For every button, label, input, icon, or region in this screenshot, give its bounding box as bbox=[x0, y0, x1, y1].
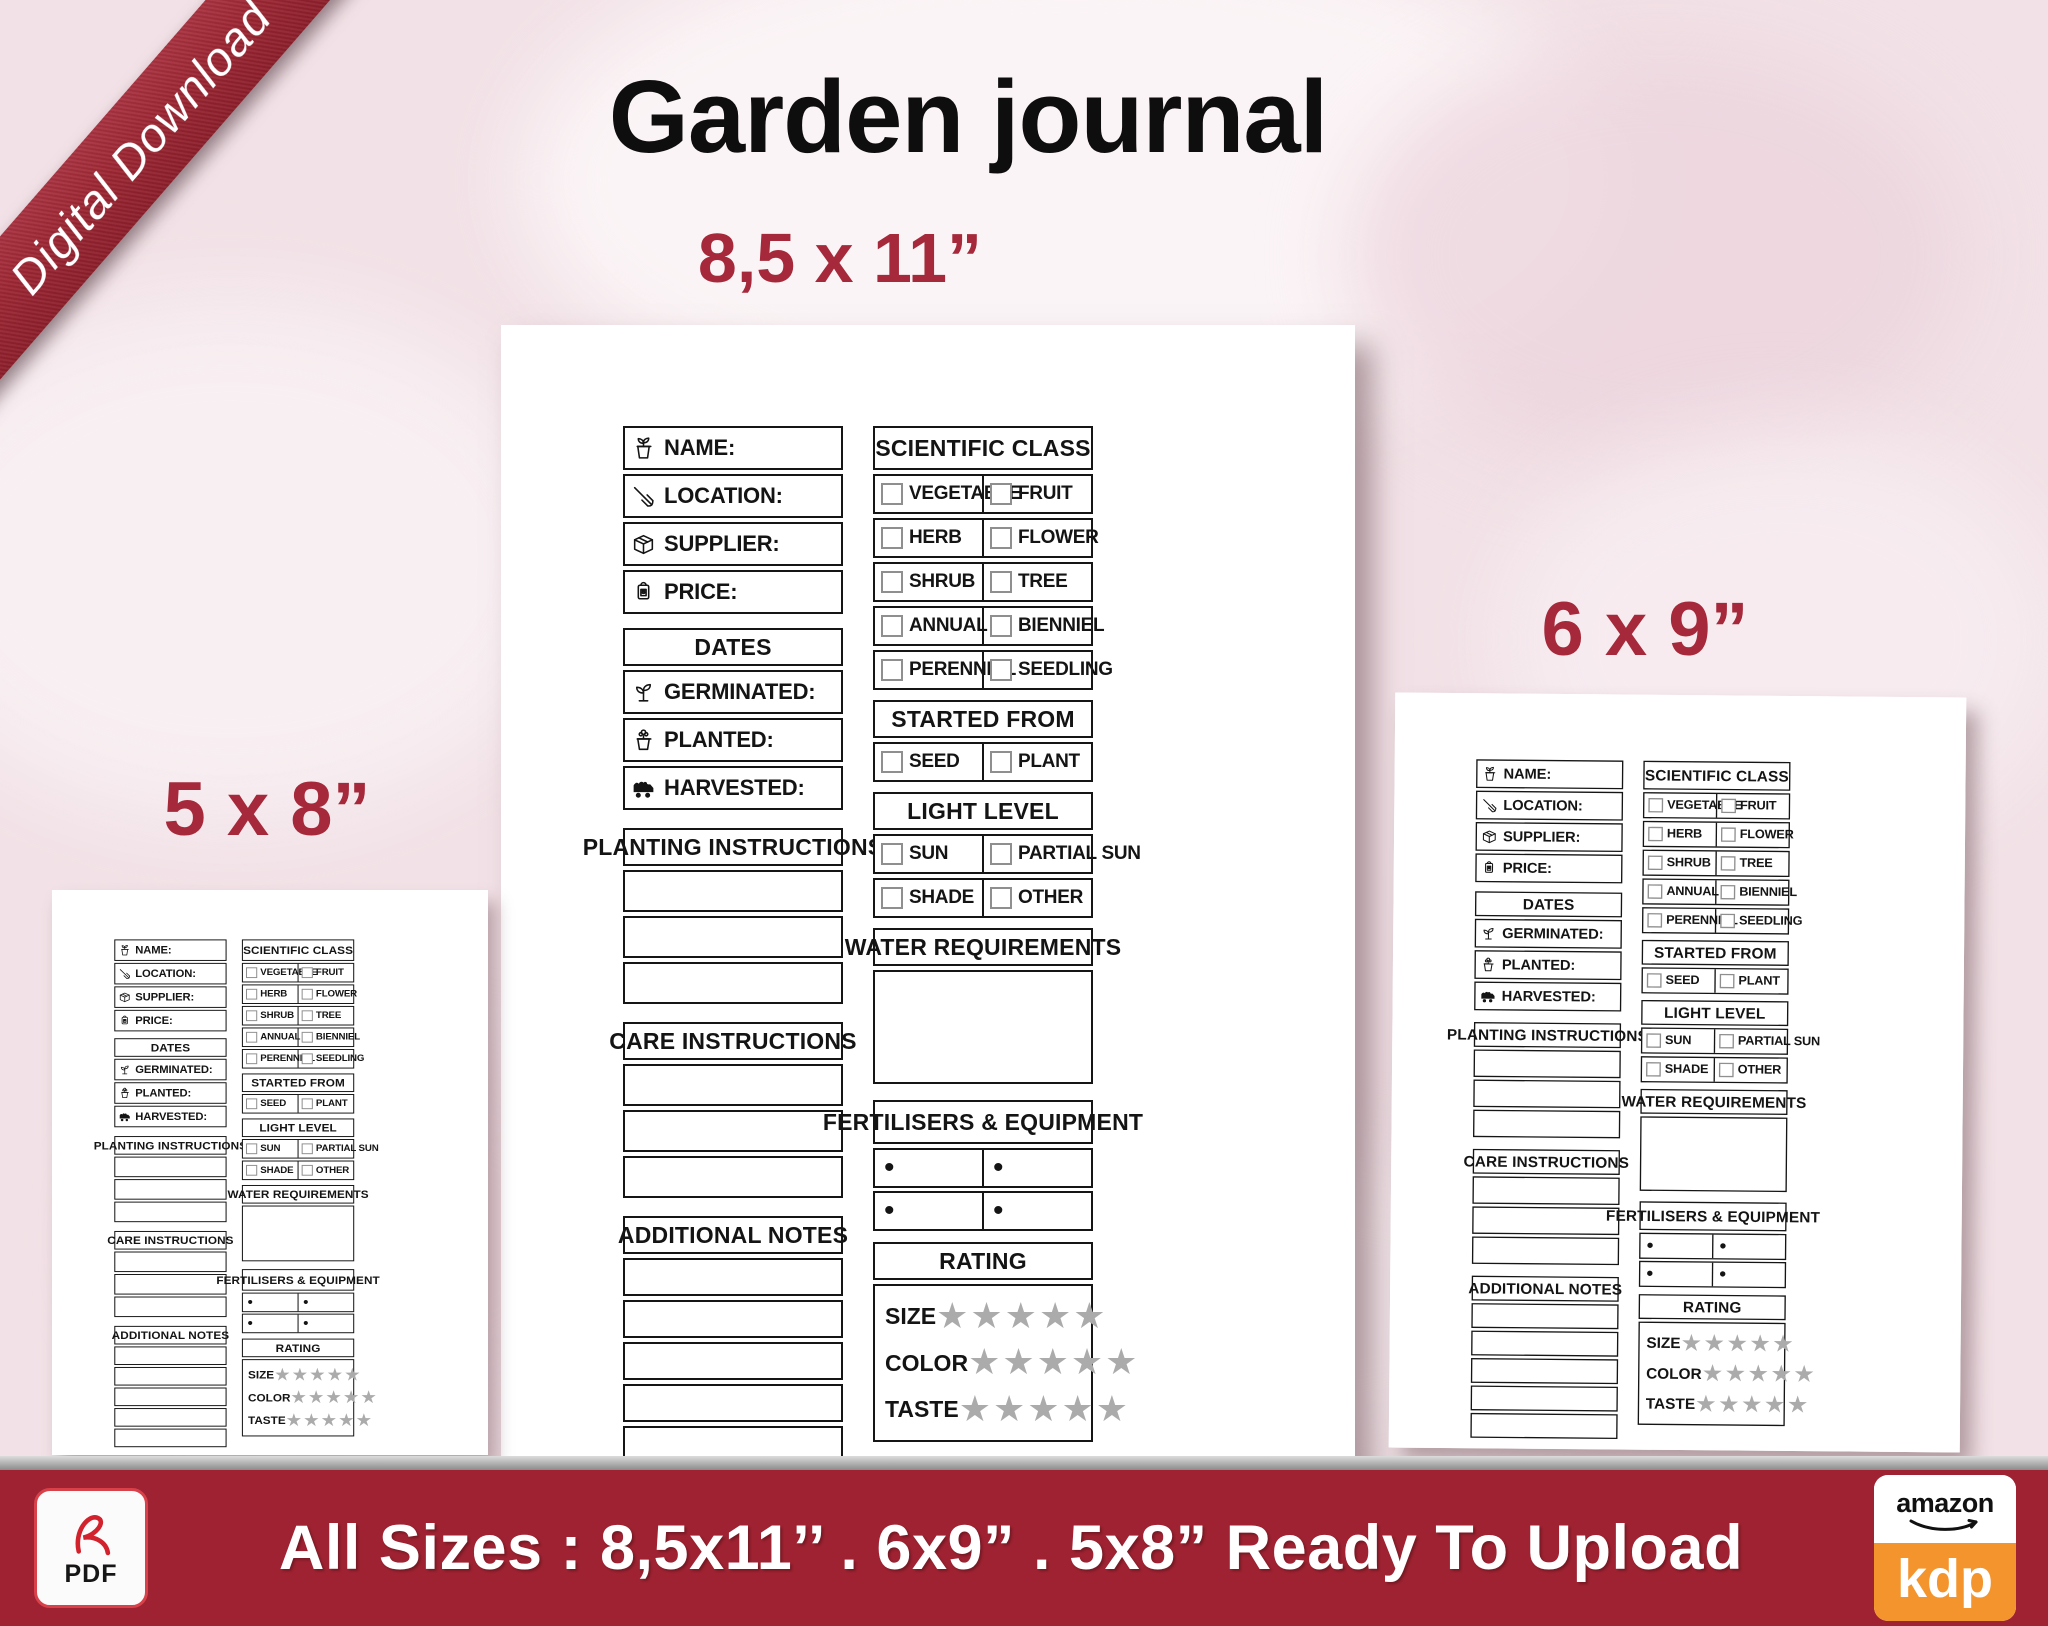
checkbox bbox=[990, 751, 1012, 773]
supplier-label: SUPPLIER: bbox=[135, 991, 194, 1004]
option-other: OTHER bbox=[299, 1162, 354, 1180]
rating-row-taste: TASTE ★★★★★ bbox=[885, 1392, 1081, 1428]
bullet: • bbox=[1719, 1265, 1726, 1285]
writing-line bbox=[1471, 1358, 1618, 1384]
writing-line bbox=[1471, 1331, 1618, 1357]
option-label: SHRUB bbox=[260, 1010, 294, 1021]
rating-size-label: SIZE bbox=[885, 1303, 936, 1330]
checkbox bbox=[990, 483, 1012, 505]
scientific-class-header: SCIENTIFIC CLASS bbox=[242, 939, 354, 961]
light-level-label: LIGHT LEVEL bbox=[907, 798, 1059, 825]
rating-label: RATING bbox=[939, 1248, 1027, 1275]
writing-line bbox=[114, 1202, 226, 1223]
germinated-field: GERMINATED: bbox=[114, 1059, 226, 1081]
option-label: SEEDLING bbox=[1739, 914, 1802, 929]
option-tree: TREE bbox=[1717, 852, 1789, 876]
potted-flower-icon bbox=[1479, 956, 1497, 974]
journal-page-8-5x11: NAME: LOCATION: SUPPLIER: bbox=[501, 325, 1355, 1480]
checkbox-row: SUN PARTIAL SUN bbox=[873, 834, 1093, 874]
journal-right-column: SCIENTIFIC CLASS VEGETABLE FRUIT HERB bbox=[242, 939, 354, 1449]
option-shrub: SHRUB bbox=[875, 564, 984, 600]
checkbox-row: PERENNIAL SEEDLING bbox=[1642, 907, 1789, 934]
rating-size-label: SIZE bbox=[1646, 1334, 1680, 1352]
option-label: FRUIT bbox=[1018, 483, 1072, 505]
scientific-class-label: SCIENTIFIC CLASS bbox=[1645, 766, 1789, 785]
checkbox bbox=[1719, 1063, 1734, 1078]
checkbox bbox=[881, 571, 903, 593]
option-bienniel: BIENNIEL bbox=[984, 608, 1091, 644]
writing-line bbox=[114, 1346, 226, 1365]
scientific-class-header: SCIENTIFIC CLASS bbox=[873, 426, 1093, 470]
star-rating-icons: ★★★★★ bbox=[286, 1412, 373, 1430]
option-vegetable: VEGETABLE bbox=[875, 476, 984, 512]
page-surface: NAME: LOCATION: SUPPLIER: bbox=[52, 890, 488, 1455]
price-tag-icon bbox=[630, 579, 657, 606]
fertilisers-label: FERTILISERS & EQUIPMENT bbox=[1606, 1207, 1820, 1227]
option-herb: HERB bbox=[875, 520, 984, 556]
checkbox bbox=[246, 1098, 257, 1109]
checkbox bbox=[990, 615, 1012, 637]
writing-line bbox=[1473, 1110, 1620, 1139]
star-rating-icons: ★★★★★ bbox=[1702, 1362, 1817, 1387]
option-label: PARTIAL SUN bbox=[1738, 1034, 1820, 1049]
option-label: SHADE bbox=[1665, 1062, 1709, 1077]
journal-template: NAME: LOCATION: SUPPLIER: bbox=[1470, 759, 1790, 1443]
checkbox-row: HERB FLOWER bbox=[242, 984, 354, 1004]
rating-color-label: COLOR bbox=[1646, 1364, 1702, 1382]
option-label: SEED bbox=[1666, 973, 1700, 988]
option-fruit: FRUIT bbox=[299, 964, 354, 982]
started-from-label: STARTED FROM bbox=[891, 706, 1074, 733]
rating-row-size: SIZE ★★★★★ bbox=[1646, 1331, 1777, 1356]
light-level-label: LIGHT LEVEL bbox=[259, 1121, 336, 1134]
rating-label: RATING bbox=[276, 1341, 321, 1354]
water-requirements-label: WATER REQUIREMENTS bbox=[845, 934, 1122, 961]
kdp-wordmark: kdp bbox=[1874, 1543, 2016, 1621]
option-plant: PLANT bbox=[984, 744, 1091, 780]
location-label: LOCATION: bbox=[135, 967, 196, 980]
checkbox-row: SUN PARTIAL SUN bbox=[242, 1139, 354, 1159]
option-label: SEED bbox=[260, 1098, 286, 1109]
location-field: LOCATION: bbox=[1476, 791, 1623, 821]
checkbox-row: ANNUAL BIENNIEL bbox=[1642, 878, 1789, 905]
option-bienniel: BIENNIEL bbox=[299, 1028, 354, 1046]
option-sun: SUN bbox=[875, 836, 984, 872]
fertiliser-cell: • bbox=[984, 1150, 1091, 1186]
fertiliser-row: • • bbox=[242, 1314, 354, 1334]
writing-line bbox=[1473, 1080, 1620, 1109]
plant-pot-icon bbox=[1481, 765, 1499, 783]
rating-box: SIZE ★★★★★ COLOR ★★★★★ TASTE ★★★★★ bbox=[873, 1284, 1093, 1442]
option-label: SUN bbox=[909, 843, 948, 865]
star-rating-icons: ★★★★★ bbox=[1680, 1331, 1795, 1356]
rating-header: RATING bbox=[873, 1242, 1093, 1280]
option-label: SHRUB bbox=[1667, 856, 1711, 871]
amazon-brand-label: amazon bbox=[1896, 1490, 1994, 1517]
checkbox bbox=[246, 1053, 257, 1064]
bullet: • bbox=[1646, 1264, 1653, 1284]
name-label: NAME: bbox=[135, 944, 171, 957]
writing-line bbox=[114, 1388, 226, 1407]
fertiliser-cell: • bbox=[1713, 1263, 1785, 1287]
option-shade: SHADE bbox=[875, 880, 984, 916]
writing-line bbox=[623, 1342, 843, 1380]
fertiliser-row: • • bbox=[873, 1191, 1093, 1231]
dates-header: DATES bbox=[623, 628, 843, 666]
option-label: OTHER bbox=[316, 1165, 349, 1176]
water-requirements-label: WATER REQUIREMENTS bbox=[1621, 1092, 1806, 1111]
planted-field: PLANTED: bbox=[1474, 950, 1621, 980]
option-label: SHRUB bbox=[909, 571, 975, 593]
water-requirements-box bbox=[1640, 1116, 1788, 1192]
option-bienniel: BIENNIEL bbox=[1716, 880, 1788, 904]
checkbox-row: SHRUB TREE bbox=[242, 1006, 354, 1026]
page-surface: NAME: LOCATION: SUPPLIER: bbox=[501, 325, 1355, 1480]
journal-page-6x9: NAME: LOCATION: SUPPLIER: bbox=[1389, 693, 1967, 1453]
supplier-field: SUPPLIER: bbox=[114, 986, 226, 1008]
checkbox-row: HERB FLOWER bbox=[1643, 821, 1790, 848]
rating-header: RATING bbox=[1639, 1294, 1786, 1320]
checkbox bbox=[302, 1010, 313, 1021]
option-sun: SUN bbox=[1642, 1029, 1715, 1053]
option-label: BIENNIEL bbox=[316, 1032, 360, 1043]
product-listing-image: Digital Download Garden journal 8,5 x 11… bbox=[0, 0, 2048, 1626]
writing-line bbox=[623, 1300, 843, 1338]
additional-notes-label: ADDITIONAL NOTES bbox=[1468, 1279, 1622, 1298]
option-label: FLOWER bbox=[1018, 527, 1099, 549]
checkbox bbox=[1720, 885, 1735, 900]
name-label: NAME: bbox=[664, 435, 735, 461]
option-label: PLANT bbox=[316, 1098, 348, 1109]
started-from-label: STARTED FROM bbox=[251, 1076, 345, 1089]
checkbox bbox=[1721, 827, 1736, 842]
fertiliser-row: • • bbox=[242, 1293, 354, 1313]
star-rating-icons: ★★★★★ bbox=[968, 1345, 1139, 1381]
checkbox bbox=[1721, 799, 1736, 814]
bullet: • bbox=[1719, 1237, 1726, 1257]
option-shade: SHADE bbox=[243, 1162, 299, 1180]
rating-taste-label: TASTE bbox=[248, 1414, 286, 1427]
option-perennial: PERENNIAL bbox=[1643, 908, 1716, 932]
water-requirements-header: WATER REQUIREMENTS bbox=[242, 1185, 354, 1204]
location-field: LOCATION: bbox=[114, 963, 226, 985]
checkbox bbox=[1646, 1062, 1661, 1077]
kdp-label: kdp bbox=[1897, 1552, 1993, 1606]
name-label: NAME: bbox=[1504, 765, 1552, 782]
checkbox-row: SHRUB TREE bbox=[1642, 850, 1789, 877]
checkbox bbox=[881, 751, 903, 773]
page-surface: NAME: LOCATION: SUPPLIER: bbox=[1389, 693, 1967, 1453]
writing-line bbox=[114, 1274, 226, 1295]
checkbox bbox=[881, 659, 903, 681]
star-rating-icons: ★★★★★ bbox=[1695, 1392, 1810, 1417]
dates-header-label: DATES bbox=[1523, 895, 1575, 913]
planting-instructions-header: PLANTING INSTRUCTIONS bbox=[1474, 1022, 1621, 1048]
writing-line bbox=[114, 1408, 226, 1427]
option-vegetable: VEGETABLE bbox=[243, 964, 299, 982]
checkbox bbox=[1720, 974, 1735, 989]
option-label: FLOWER bbox=[316, 989, 357, 1000]
price-field: PRICE: bbox=[114, 1010, 226, 1032]
option-perennial: PERENNIAL bbox=[875, 652, 984, 688]
rating-header: RATING bbox=[242, 1339, 354, 1358]
scientific-class-label: SCIENTIFIC CLASS bbox=[875, 435, 1090, 462]
writing-line bbox=[1471, 1385, 1618, 1411]
light-level-header: LIGHT LEVEL bbox=[873, 792, 1093, 830]
writing-line bbox=[623, 870, 843, 912]
checkbox bbox=[881, 887, 903, 909]
rating-row-color: COLOR ★★★★★ bbox=[1646, 1362, 1777, 1387]
option-vegetable: VEGETABLE bbox=[1644, 793, 1717, 817]
harvested-label: HARVESTED: bbox=[664, 775, 805, 801]
price-tag-icon bbox=[118, 1014, 132, 1027]
started-from-header: STARTED FROM bbox=[873, 700, 1093, 738]
care-instructions-label: CARE INSTRUCTIONS bbox=[107, 1234, 233, 1247]
sizes-ready-text: All Sizes : 8,5x11’’ . 6x9” . 5x8” Ready… bbox=[148, 1512, 1874, 1584]
option-perennial: PERENNIAL bbox=[243, 1050, 299, 1068]
box-icon bbox=[1480, 828, 1498, 846]
started-from-label: STARTED FROM bbox=[1654, 944, 1777, 963]
rating-size-label: SIZE bbox=[248, 1368, 274, 1381]
option-annual: ANNUAL bbox=[875, 608, 984, 644]
care-instructions-label: CARE INSTRUCTIONS bbox=[609, 1028, 856, 1055]
fertiliser-cell: • bbox=[875, 1193, 984, 1229]
option-label: TREE bbox=[1018, 571, 1067, 593]
option-seedling: SEEDLING bbox=[299, 1050, 354, 1068]
journal-left-column: NAME: LOCATION: SUPPLIER: bbox=[1470, 759, 1623, 1441]
option-label: PARTIAL SUN bbox=[316, 1143, 379, 1154]
name-field: NAME: bbox=[114, 939, 226, 961]
option-partial-sun: PARTIAL SUN bbox=[984, 836, 1091, 872]
checkbox bbox=[1721, 856, 1736, 871]
started-from-header: STARTED FROM bbox=[1642, 940, 1789, 966]
rating-box: SIZE ★★★★★ COLOR ★★★★★ TASTE ★★★★★ bbox=[242, 1359, 354, 1436]
light-level-label: LIGHT LEVEL bbox=[1664, 1004, 1766, 1023]
harvested-field: HARVESTED: bbox=[114, 1106, 226, 1128]
checkbox-row: VEGETABLE FRUIT bbox=[242, 963, 354, 983]
fertilisers-label: FERTILISERS & EQUIPMENT bbox=[823, 1109, 1143, 1136]
option-label: SUN bbox=[260, 1143, 280, 1154]
location-field: LOCATION: bbox=[623, 474, 843, 518]
product-title: Garden journal bbox=[468, 58, 1468, 176]
price-field: PRICE: bbox=[623, 570, 843, 614]
adobe-acrobat-swirl-icon bbox=[68, 1508, 114, 1558]
care-instructions-header: CARE INSTRUCTIONS bbox=[1473, 1149, 1620, 1175]
fertilisers-header: FERTILISERS & EQUIPMENT bbox=[873, 1100, 1093, 1144]
checkbox bbox=[1648, 884, 1663, 899]
potted-flower-icon bbox=[118, 1086, 132, 1099]
writing-line bbox=[623, 1110, 843, 1152]
rating-row-size: SIZE ★★★★★ bbox=[248, 1366, 348, 1384]
journal-template: NAME: LOCATION: SUPPLIER: bbox=[114, 939, 354, 1449]
bullet: • bbox=[248, 1295, 253, 1310]
additional-notes-label: ADDITIONAL NOTES bbox=[618, 1222, 848, 1249]
option-seed: SEED bbox=[875, 744, 984, 780]
planted-label: PLANTED: bbox=[1502, 956, 1575, 974]
name-field: NAME: bbox=[623, 426, 843, 470]
harvested-label: HARVESTED: bbox=[1502, 988, 1596, 1006]
fertiliser-row: • • bbox=[1639, 1233, 1786, 1260]
rating-taste-label: TASTE bbox=[1646, 1395, 1695, 1413]
care-instructions-label: CARE INSTRUCTIONS bbox=[1464, 1152, 1630, 1171]
option-sun: SUN bbox=[243, 1140, 299, 1158]
fertiliser-cell: • bbox=[1640, 1234, 1713, 1258]
checkbox bbox=[1647, 913, 1662, 928]
option-fruit: FRUIT bbox=[1717, 794, 1789, 818]
option-label: SEEDLING bbox=[1018, 659, 1113, 681]
planted-label: PLANTED: bbox=[664, 727, 774, 753]
rating-taste-label: TASTE bbox=[885, 1396, 959, 1423]
water-requirements-box bbox=[242, 1206, 354, 1262]
writing-line bbox=[114, 1429, 226, 1448]
size-label-5x8: 5 x 8” bbox=[67, 766, 467, 853]
scientific-class-header: SCIENTIFIC CLASS bbox=[1643, 761, 1790, 791]
writing-line bbox=[114, 1252, 226, 1273]
option-label: BIENNIEL bbox=[1739, 885, 1797, 900]
care-instructions-header: CARE INSTRUCTIONS bbox=[623, 1022, 843, 1060]
checkbox bbox=[990, 571, 1012, 593]
option-label: FRUIT bbox=[316, 967, 344, 978]
option-label: ANNUAL bbox=[1666, 884, 1719, 899]
planted-label: PLANTED: bbox=[135, 1087, 191, 1100]
option-shrub: SHRUB bbox=[243, 1007, 299, 1025]
fertiliser-cell: • bbox=[299, 1315, 354, 1333]
rating-box: SIZE ★★★★★ COLOR ★★★★★ TASTE ★★★★★ bbox=[1638, 1322, 1786, 1427]
option-other: OTHER bbox=[984, 880, 1091, 916]
garden-fork-icon bbox=[118, 967, 132, 980]
care-instructions-header: CARE INSTRUCTIONS bbox=[114, 1231, 226, 1250]
additional-notes-label: ADDITIONAL NOTES bbox=[112, 1329, 230, 1342]
option-label: OTHER bbox=[1018, 887, 1083, 909]
option-flower: FLOWER bbox=[299, 985, 354, 1003]
writing-line bbox=[623, 962, 843, 1004]
checkbox-row: SHADE OTHER bbox=[873, 878, 1093, 918]
writing-line bbox=[114, 1157, 226, 1178]
planting-instructions-header: PLANTING INSTRUCTIONS bbox=[623, 828, 843, 866]
option-plant: PLANT bbox=[299, 1095, 354, 1113]
supplier-label: SUPPLIER: bbox=[1503, 828, 1580, 846]
planting-instructions-header: PLANTING INSTRUCTIONS bbox=[114, 1136, 226, 1155]
box-icon bbox=[118, 991, 132, 1004]
option-annual: ANNUAL bbox=[243, 1028, 299, 1046]
bullet: • bbox=[884, 1153, 895, 1183]
checkbox bbox=[1720, 914, 1735, 929]
size-label-6x9: 6 x 9” bbox=[1445, 586, 1845, 673]
checkbox-row: ANNUAL BIENNIEL bbox=[873, 606, 1093, 646]
option-herb: HERB bbox=[243, 985, 299, 1003]
rating-row-taste: TASTE ★★★★★ bbox=[248, 1412, 348, 1430]
checkbox bbox=[1646, 1033, 1661, 1048]
checkbox bbox=[1648, 827, 1663, 842]
water-requirements-header: WATER REQUIREMENTS bbox=[1640, 1089, 1787, 1115]
garden-fork-icon bbox=[630, 483, 657, 510]
star-rating-icons: ★★★★★ bbox=[290, 1389, 377, 1407]
option-label: BIENNIEL bbox=[1018, 615, 1104, 637]
water-requirements-header: WATER REQUIREMENTS bbox=[873, 928, 1093, 966]
rating-color-label: COLOR bbox=[885, 1350, 968, 1377]
writing-line bbox=[114, 1179, 226, 1200]
price-tag-icon bbox=[1480, 859, 1498, 877]
planted-field: PLANTED: bbox=[114, 1082, 226, 1104]
checkbox bbox=[1648, 856, 1663, 871]
checkbox bbox=[990, 659, 1012, 681]
option-label: ANNUAL bbox=[260, 1032, 300, 1043]
box-icon bbox=[630, 531, 657, 558]
bullet: • bbox=[248, 1316, 253, 1331]
water-requirements-label: WATER REQUIREMENTS bbox=[227, 1188, 368, 1201]
option-label: HERB bbox=[1667, 827, 1702, 842]
amazon-kdp-logo: amazon kdp bbox=[1874, 1475, 2016, 1621]
option-partial-sun: PARTIAL SUN bbox=[299, 1140, 354, 1158]
checkbox bbox=[1648, 798, 1663, 813]
location-label: LOCATION: bbox=[664, 483, 783, 509]
option-label: PLANT bbox=[1738, 974, 1779, 989]
bullet: • bbox=[1646, 1236, 1653, 1256]
price-label: PRICE: bbox=[1503, 860, 1552, 877]
harvest-cart-icon bbox=[118, 1110, 132, 1123]
option-label: SHADE bbox=[909, 887, 974, 909]
planting-instructions-label: PLANTING INSTRUCTIONS bbox=[94, 1139, 247, 1152]
checkbox bbox=[302, 1098, 313, 1109]
checkbox bbox=[881, 527, 903, 549]
sprout-icon bbox=[630, 679, 657, 706]
additional-notes-header: ADDITIONAL NOTES bbox=[114, 1326, 226, 1345]
writing-line bbox=[1472, 1206, 1619, 1235]
fertiliser-cell: • bbox=[243, 1294, 299, 1312]
rating-color-label: COLOR bbox=[248, 1391, 290, 1404]
ribbon-label: Digital Download bbox=[0, 0, 282, 304]
started-from-header: STARTED FROM bbox=[242, 1073, 354, 1092]
light-level-header: LIGHT LEVEL bbox=[1641, 1000, 1788, 1026]
option-shade: SHADE bbox=[1642, 1057, 1715, 1081]
plant-pot-icon bbox=[630, 435, 657, 462]
fertiliser-cell: • bbox=[875, 1150, 984, 1186]
harvest-cart-icon bbox=[630, 775, 657, 802]
writing-line bbox=[1472, 1176, 1619, 1205]
rating-row-size: SIZE ★★★★★ bbox=[885, 1299, 1081, 1335]
rating-label: RATING bbox=[1683, 1298, 1742, 1316]
fertilisers-header: FERTILISERS & EQUIPMENT bbox=[1639, 1201, 1786, 1231]
journal-page-5x8: NAME: LOCATION: SUPPLIER: bbox=[52, 890, 488, 1455]
option-label: SEEDLING bbox=[316, 1053, 364, 1064]
writing-line bbox=[623, 1156, 843, 1198]
writing-line bbox=[623, 1064, 843, 1106]
fertilisers-header: FERTILISERS & EQUIPMENT bbox=[242, 1269, 354, 1291]
bullet: • bbox=[993, 1153, 1004, 1183]
checkbox bbox=[246, 1032, 257, 1043]
option-label: OTHER bbox=[1738, 1063, 1782, 1078]
checkbox-row: SUN PARTIAL SUN bbox=[1641, 1027, 1788, 1054]
option-label: FRUIT bbox=[1740, 799, 1777, 814]
checkbox-row: HERB FLOWER bbox=[873, 518, 1093, 558]
star-rating-icons: ★★★★★ bbox=[959, 1392, 1130, 1428]
checkbox-row: PERENNIAL SEEDLING bbox=[242, 1049, 354, 1069]
checkbox-row: SHRUB TREE bbox=[873, 562, 1093, 602]
journal-left-column: NAME: LOCATION: SUPPLIER: bbox=[623, 426, 843, 1468]
harvest-cart-icon bbox=[1479, 987, 1497, 1005]
checkbox-row: SEED PLANT bbox=[873, 742, 1093, 782]
amazon-wordmark: amazon bbox=[1874, 1475, 2016, 1543]
dates-header-label: DATES bbox=[151, 1041, 190, 1054]
bullet: • bbox=[993, 1196, 1004, 1226]
checkbox bbox=[302, 1053, 313, 1064]
name-field: NAME: bbox=[1476, 759, 1623, 789]
germinated-label: GERMINATED: bbox=[664, 679, 815, 705]
scientific-class-label: SCIENTIFIC CLASS bbox=[243, 944, 353, 957]
checkbox bbox=[990, 843, 1012, 865]
checkbox-row: SHADE OTHER bbox=[242, 1161, 354, 1181]
option-label: SUN bbox=[1665, 1034, 1691, 1049]
